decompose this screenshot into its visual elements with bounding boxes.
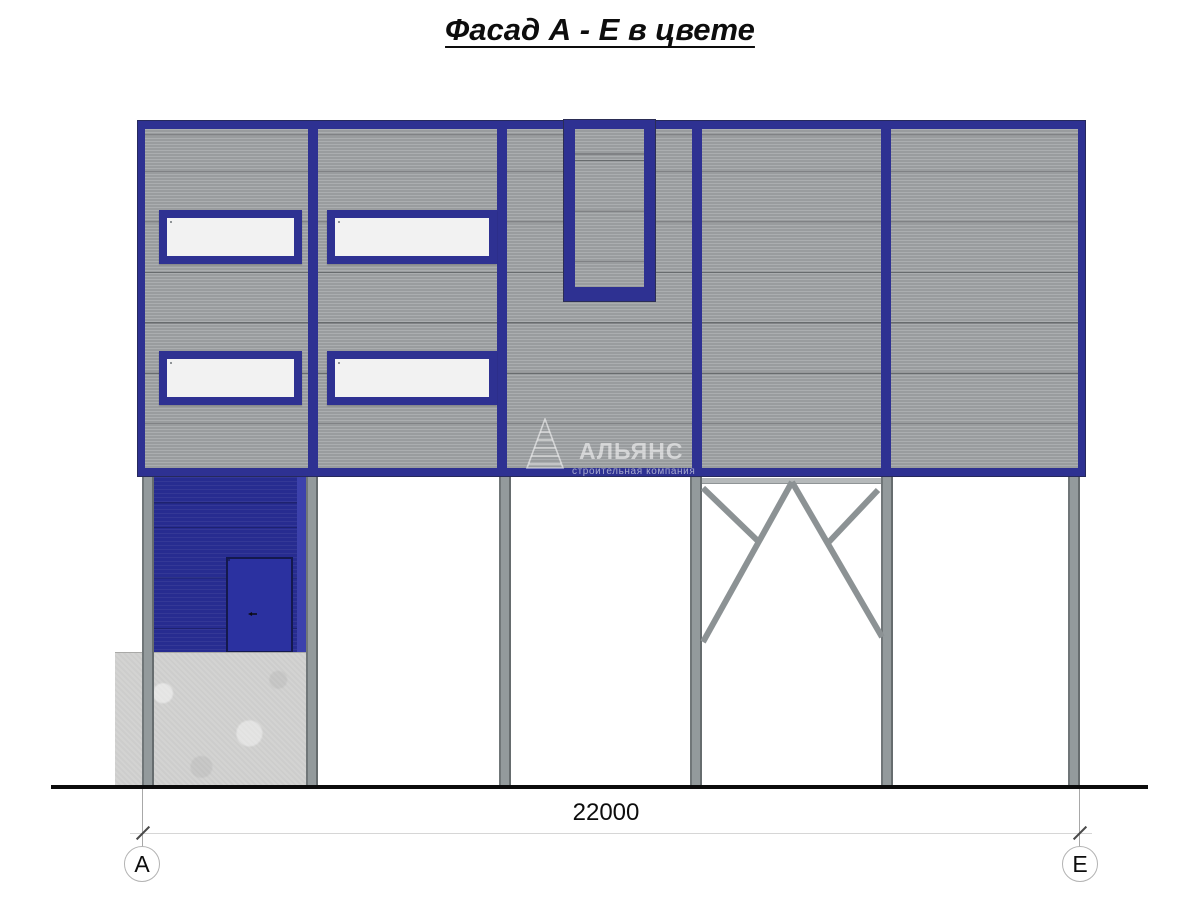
facade-recess-siding bbox=[575, 129, 644, 287]
window-pane bbox=[170, 221, 172, 223]
ribbon-window bbox=[327, 351, 497, 405]
entrance-wall bbox=[153, 477, 307, 653]
entrance-door bbox=[226, 557, 293, 653]
ribbon-window bbox=[327, 210, 497, 264]
door-handle bbox=[248, 612, 257, 616]
ribbon-window bbox=[159, 210, 302, 264]
facade-frame bbox=[137, 120, 1086, 477]
dimension-line bbox=[130, 833, 1092, 834]
elevation-drawing: Фасад А - Е в цвете bbox=[0, 0, 1200, 900]
window-glazing bbox=[335, 359, 489, 397]
dimension-value: 22000 bbox=[481, 799, 731, 827]
door-leaf bbox=[228, 559, 230, 561]
window-pane bbox=[338, 362, 340, 364]
window-glazing bbox=[167, 218, 294, 256]
facade-mullion bbox=[308, 129, 318, 468]
extension-line bbox=[142, 789, 143, 847]
extension-line bbox=[1079, 789, 1080, 847]
window-glazing bbox=[335, 218, 489, 256]
axis-marker-a: А bbox=[124, 846, 160, 882]
steel-column bbox=[499, 477, 511, 787]
axis-marker-e: Е bbox=[1062, 846, 1098, 882]
window-pane bbox=[170, 362, 172, 364]
facade-mullion bbox=[497, 129, 507, 468]
window-glazing bbox=[167, 359, 294, 397]
facade-mullion bbox=[881, 129, 891, 468]
facade-recess-channel bbox=[563, 119, 656, 302]
axis-label: Е bbox=[1072, 851, 1087, 878]
diagonal-bracing bbox=[690, 477, 894, 649]
steel-column bbox=[306, 477, 318, 787]
steel-column bbox=[1068, 477, 1080, 787]
steel-column bbox=[142, 477, 154, 787]
window-pane bbox=[338, 221, 340, 223]
facade-mullion bbox=[692, 129, 702, 468]
axis-label: А bbox=[134, 851, 149, 878]
drawing-title: Фасад А - Е в цвете bbox=[0, 12, 1200, 48]
ribbon-window bbox=[159, 351, 302, 405]
ground-line bbox=[51, 785, 1148, 789]
